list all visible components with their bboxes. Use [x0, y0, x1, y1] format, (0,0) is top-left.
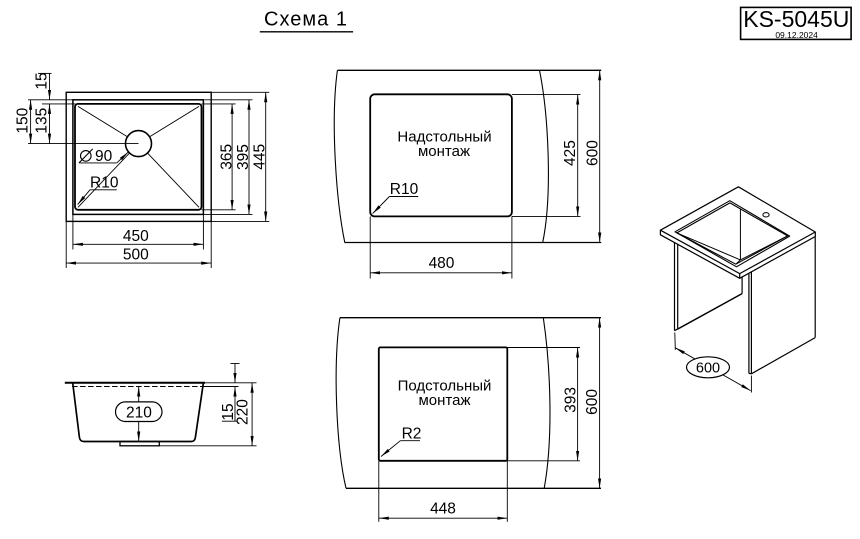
- svg-text:393: 393: [562, 387, 579, 413]
- svg-text:500: 500: [123, 246, 149, 263]
- svg-text:395: 395: [235, 144, 252, 170]
- svg-text:R10: R10: [390, 181, 419, 198]
- svg-text:монтаж: монтаж: [418, 143, 470, 160]
- svg-text:600: 600: [584, 389, 601, 415]
- svg-text:210: 210: [126, 404, 152, 421]
- svg-text:R10: R10: [90, 174, 119, 191]
- svg-text:425: 425: [562, 140, 579, 166]
- svg-text:135: 135: [33, 108, 50, 134]
- svg-text:монтаж: монтаж: [418, 392, 470, 409]
- svg-text:R2: R2: [402, 426, 422, 443]
- svg-text:600: 600: [696, 361, 720, 377]
- svg-text:15: 15: [33, 72, 50, 89]
- svg-text:480: 480: [429, 255, 455, 272]
- svg-text:09.12.2024: 09.12.2024: [775, 30, 818, 40]
- svg-text:600: 600: [585, 140, 602, 166]
- svg-text:365: 365: [218, 144, 235, 170]
- svg-text:220: 220: [235, 399, 252, 425]
- svg-text:150: 150: [14, 107, 31, 133]
- svg-text:450: 450: [123, 228, 149, 245]
- svg-text:448: 448: [430, 501, 456, 518]
- svg-text:445: 445: [252, 144, 269, 170]
- svg-text:KS-5045U: KS-5045U: [743, 6, 849, 32]
- svg-text:Схема 1: Схема 1: [264, 9, 348, 31]
